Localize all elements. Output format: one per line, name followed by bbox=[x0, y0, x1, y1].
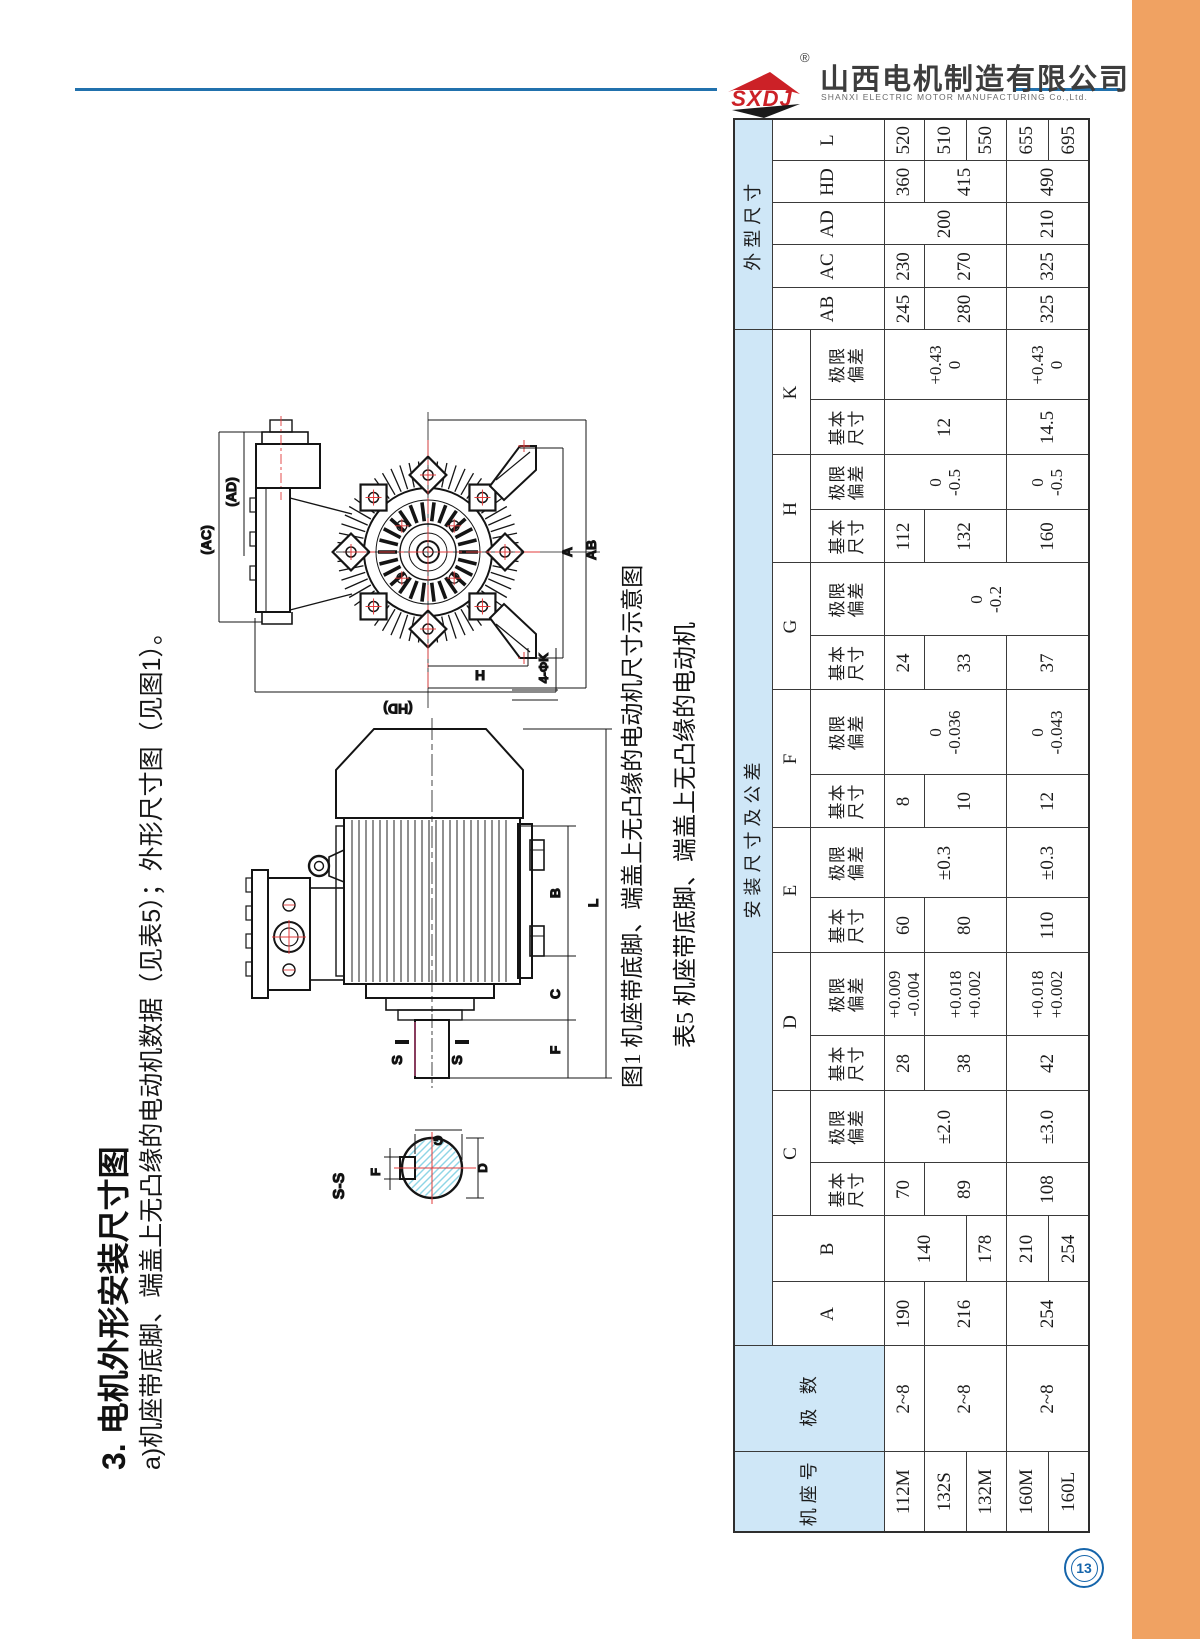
table-cell: G bbox=[772, 563, 810, 690]
section-title: 3. 电机外形安装尺寸图 bbox=[92, 1090, 136, 1470]
table-cell: +0.43 0 bbox=[884, 330, 1006, 400]
table-cell: 极限 偏差 bbox=[810, 690, 884, 775]
table-cell: +0.018 +0.002 bbox=[924, 953, 1006, 1036]
table-cell: 24 bbox=[884, 636, 924, 690]
table-cell: 2~8 bbox=[884, 1346, 924, 1452]
table-cell: ±2.0 bbox=[884, 1091, 1006, 1163]
dim-label-g: G bbox=[433, 1133, 443, 1148]
spec-table-wrap: 机座号极 数安装尺寸及公差外型尺寸ABCDEFGHKABACADHDL基本 尺寸… bbox=[733, 120, 1088, 1533]
table-cell: 270 bbox=[924, 245, 1006, 288]
dim-label-4k: 4-ΦK bbox=[537, 653, 551, 683]
table-cell: 2~8 bbox=[1006, 1346, 1089, 1452]
table-cell: 510 bbox=[924, 119, 966, 161]
table-cell: 160M bbox=[1006, 1452, 1048, 1532]
dim-label-ad: (AD) bbox=[223, 477, 239, 507]
table-cell: 14.5 bbox=[1006, 400, 1089, 455]
dim-label-l: L bbox=[585, 898, 601, 907]
table-cell: 12 bbox=[1006, 775, 1089, 828]
table-cell: 210 bbox=[1006, 1216, 1048, 1282]
table-cell: 10 bbox=[924, 775, 1006, 828]
table-cell: 外型尺寸 bbox=[734, 119, 772, 330]
dim-label-d: D bbox=[475, 1163, 490, 1172]
table-row: ABCDEFGHKABACADHDL bbox=[772, 119, 810, 1532]
section-title: S-S bbox=[331, 1172, 348, 1199]
table-cell: 132 bbox=[924, 510, 1006, 563]
table-cell: 110 bbox=[1006, 898, 1089, 953]
section-mark-s-right: S bbox=[449, 1055, 466, 1065]
registered-mark: ® bbox=[800, 50, 810, 65]
dim-label-c: C bbox=[547, 989, 563, 999]
table-cell: 210 bbox=[1006, 203, 1089, 245]
table-cell: 极 数 bbox=[734, 1346, 884, 1452]
table-cell: 190 bbox=[884, 1282, 924, 1346]
table-cell: 254 bbox=[1048, 1216, 1089, 1282]
table-cell: 216 bbox=[924, 1282, 1006, 1346]
table-cell: 0 -0.043 bbox=[1006, 690, 1089, 775]
dim-label-a: A bbox=[559, 547, 575, 557]
dim-label-ac: (AC) bbox=[198, 525, 214, 555]
table-cell: 37 bbox=[1006, 636, 1089, 690]
table-cell: 132M bbox=[966, 1452, 1006, 1532]
table-cell: 极限 偏差 bbox=[810, 828, 884, 898]
table-cell: 极限 偏差 bbox=[810, 953, 884, 1036]
table-cell: 230 bbox=[884, 245, 924, 288]
table-cell: 520 bbox=[884, 119, 924, 161]
table-cell: 132S bbox=[924, 1452, 966, 1532]
table-cell: 178 bbox=[966, 1216, 1006, 1282]
table-cell: 280 bbox=[924, 288, 1006, 330]
dim-label-f-side: F bbox=[547, 1045, 563, 1054]
table-cell: 160 bbox=[1006, 510, 1089, 563]
table-cell: 160L bbox=[1048, 1452, 1089, 1532]
table-cell: 基本 尺寸 bbox=[810, 1036, 884, 1091]
table-cell: 基本 尺寸 bbox=[810, 1163, 884, 1216]
table-caption: 表5 机座带底脚、端盖上无凸缘的电动机 bbox=[670, 548, 702, 1048]
table-cell: E bbox=[772, 828, 810, 953]
table-cell: F bbox=[772, 690, 810, 828]
section-subtitle: a)机座带底脚、端盖上无凸缘的电动机数据（见表5）；外形尺寸图（见图1）。 bbox=[136, 600, 168, 1470]
table-cell: 112 bbox=[884, 510, 924, 563]
table-cell: 基本 尺寸 bbox=[810, 510, 884, 563]
table-cell: 极限 偏差 bbox=[810, 330, 884, 400]
dim-label-ab: AB bbox=[583, 540, 599, 560]
company-name-en: SHANXI ELECTRIC MOTOR MANUFACTURING Co.,… bbox=[821, 92, 1088, 102]
table-cell: 12 bbox=[884, 400, 1006, 455]
table-cell: 490 bbox=[1006, 161, 1089, 203]
table-cell: 0 -0.5 bbox=[1006, 455, 1089, 510]
table-cell: 325 bbox=[1006, 288, 1089, 330]
table-cell: ±3.0 bbox=[1006, 1091, 1089, 1163]
table-cell: 安装尺寸及公差 bbox=[734, 330, 772, 1346]
table-cell: 极限 偏差 bbox=[810, 455, 884, 510]
table-cell: AB bbox=[772, 288, 884, 330]
table-cell: 2~8 bbox=[924, 1346, 1006, 1452]
table-cell: ±0.3 bbox=[884, 828, 1006, 898]
table-row: 112M2~819014070±2.028+0.009 -0.00460±0.3… bbox=[884, 119, 924, 1532]
table-cell: B bbox=[772, 1216, 884, 1282]
table-cell: 38 bbox=[924, 1036, 1006, 1091]
dim-label-h: H bbox=[475, 667, 485, 683]
table-cell: 33 bbox=[924, 636, 1006, 690]
table-cell: 360 bbox=[884, 161, 924, 203]
catalog-page: SXDJ ® 山西电机制造有限公司 SHANXI ELECTRIC MOTOR … bbox=[0, 0, 1200, 1639]
header-rule-left bbox=[75, 88, 717, 91]
table-cell: AD bbox=[772, 203, 884, 245]
table-cell: 80 bbox=[924, 898, 1006, 953]
table-cell: 200 bbox=[884, 203, 1006, 245]
table-cell: D bbox=[772, 953, 810, 1091]
table-cell: 325 bbox=[1006, 245, 1089, 288]
table-cell: 254 bbox=[1006, 1282, 1089, 1346]
table-cell: 245 bbox=[884, 288, 924, 330]
side-view: S S B C F L bbox=[246, 718, 612, 1088]
table-cell: +0.009 -0.004 bbox=[884, 953, 924, 1036]
table-cell: 基本 尺寸 bbox=[810, 898, 884, 953]
shaft-section-detail: G D F S-S bbox=[331, 1130, 529, 1204]
table-cell: 0 -0.036 bbox=[884, 690, 1006, 775]
table-cell: 基本 尺寸 bbox=[810, 636, 884, 690]
table-cell: K bbox=[772, 330, 810, 455]
table-cell: C bbox=[772, 1091, 810, 1216]
front-view: (AD) (AC) (HD) H A AB 4-ΦK bbox=[198, 412, 600, 717]
table-cell: 基本 尺寸 bbox=[810, 400, 884, 455]
motor-drawings: (AD) (AC) (HD) H A AB 4-ΦK bbox=[180, 380, 650, 1240]
table-cell: 0 -0.5 bbox=[884, 455, 1006, 510]
table-cell: 极限 偏差 bbox=[810, 1091, 884, 1163]
table-cell: 140 bbox=[884, 1216, 966, 1282]
table-cell: 655 bbox=[1006, 119, 1048, 161]
table-cell: 695 bbox=[1048, 119, 1089, 161]
table-cell: +0.43 0 bbox=[1006, 330, 1089, 400]
table-cell: 550 bbox=[966, 119, 1006, 161]
table-cell: 89 bbox=[924, 1163, 1006, 1216]
table-cell: H bbox=[772, 455, 810, 563]
spec-table: 机座号极 数安装尺寸及公差外型尺寸ABCDEFGHKABACADHDL基本 尺寸… bbox=[733, 118, 1090, 1533]
table-cell: 机座号 bbox=[734, 1452, 884, 1532]
orange-side-bar bbox=[1132, 0, 1200, 1639]
table-cell: AC bbox=[772, 245, 884, 288]
table-cell: A bbox=[772, 1282, 884, 1346]
table-row: 机座号极 数安装尺寸及公差外型尺寸 bbox=[734, 119, 772, 1532]
table-cell: 8 bbox=[884, 775, 924, 828]
dim-label-f-section: F bbox=[368, 1168, 383, 1176]
table-cell: 415 bbox=[924, 161, 1006, 203]
table-cell: 60 bbox=[884, 898, 924, 953]
section-mark-s-left: S bbox=[389, 1055, 406, 1065]
table-cell: 极限 偏差 bbox=[810, 563, 884, 636]
table-row: 160M2~8254210108±3.042+0.018 +0.002110±0… bbox=[1006, 119, 1048, 1532]
table-cell: 0 -0.2 bbox=[884, 563, 1089, 636]
table-cell: 28 bbox=[884, 1036, 924, 1091]
table-cell: ±0.3 bbox=[1006, 828, 1089, 898]
table-cell: +0.018 +0.002 bbox=[1006, 953, 1089, 1036]
table-cell: L bbox=[772, 119, 884, 161]
page-number-badge: 13 bbox=[1064, 1548, 1104, 1588]
table-cell: 112M bbox=[884, 1452, 924, 1532]
table-cell: 42 bbox=[1006, 1036, 1089, 1091]
table-cell: 基本 尺寸 bbox=[810, 775, 884, 828]
dim-label-hd: (HD) bbox=[383, 701, 413, 717]
dim-label-b: B bbox=[547, 888, 563, 898]
table-cell: 70 bbox=[884, 1163, 924, 1216]
page-number: 13 bbox=[1071, 1555, 1098, 1582]
table-cell: 108 bbox=[1006, 1163, 1089, 1216]
company-logo: SXDJ bbox=[690, 40, 815, 120]
table-cell: HD bbox=[772, 161, 884, 203]
